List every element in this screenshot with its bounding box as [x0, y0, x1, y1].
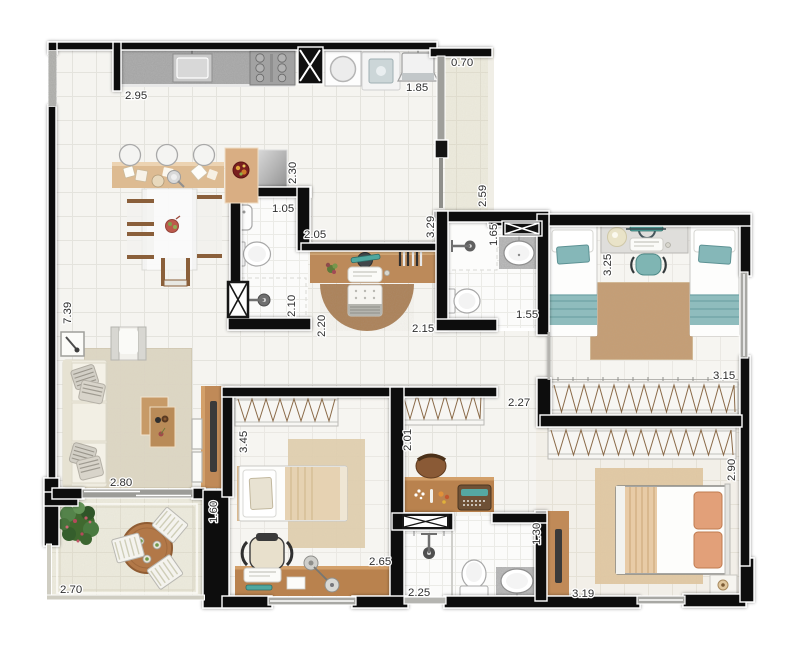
svg-text:3.25: 3.25	[602, 254, 614, 276]
svg-text:3.29: 3.29	[425, 216, 437, 238]
svg-text:2.10: 2.10	[286, 295, 298, 317]
svg-text:1.55: 1.55	[516, 309, 538, 321]
svg-text:2.95: 2.95	[125, 90, 147, 102]
svg-text:2.01: 2.01	[402, 429, 414, 451]
svg-text:2.65: 2.65	[369, 556, 391, 568]
svg-text:1.05: 1.05	[272, 203, 294, 215]
svg-text:2.70: 2.70	[60, 584, 82, 596]
svg-text:3.15: 3.15	[713, 370, 735, 382]
svg-text:3.19: 3.19	[572, 588, 594, 600]
svg-text:7.39: 7.39	[62, 302, 74, 324]
svg-text:2.59: 2.59	[477, 185, 489, 207]
svg-text:2.25: 2.25	[408, 587, 430, 599]
svg-text:2.05: 2.05	[304, 229, 326, 241]
svg-text:3.45: 3.45	[238, 431, 250, 453]
svg-text:0.70: 0.70	[451, 57, 473, 69]
svg-text:2.15: 2.15	[412, 323, 434, 335]
svg-text:2.20: 2.20	[316, 315, 328, 337]
svg-text:1.85: 1.85	[406, 82, 428, 94]
svg-text:2.30: 2.30	[287, 162, 299, 184]
svg-text:2.27: 2.27	[508, 397, 530, 409]
svg-text:1.65: 1.65	[488, 224, 500, 246]
svg-text:2.90: 2.90	[726, 459, 738, 481]
svg-text:2.80: 2.80	[110, 477, 132, 489]
svg-text:1.30: 1.30	[531, 523, 543, 545]
svg-text:1.60: 1.60	[208, 501, 220, 523]
